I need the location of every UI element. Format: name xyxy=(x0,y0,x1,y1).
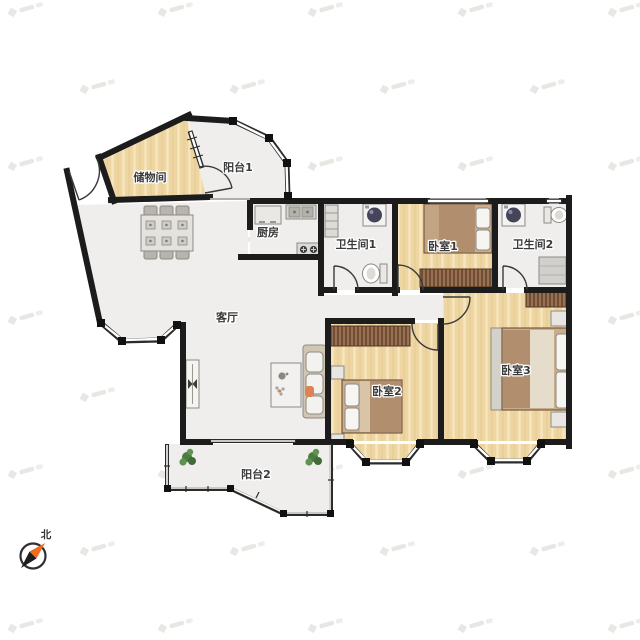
watermark-icon xyxy=(6,615,44,635)
floorplan-canvas: 储物间 阳台1 厨房 卫生间1 卧室1 卫生间2 客厅 卧室2 卧室3 阳台2 … xyxy=(0,0,640,640)
bath2-toilet xyxy=(544,207,567,223)
watermark-icon xyxy=(156,0,194,19)
watermark-icon xyxy=(378,76,416,96)
bath1-washing-machine xyxy=(363,204,386,226)
sofa xyxy=(303,345,326,418)
watermark-icon xyxy=(606,153,640,173)
watermark-icon xyxy=(228,538,266,558)
label-bath1: 卫生间1 xyxy=(336,237,377,251)
watermark-icon xyxy=(6,0,44,19)
label-balcony1: 阳台1 xyxy=(223,160,253,174)
watermark-icon xyxy=(378,538,416,558)
bedroom2-wardrobe xyxy=(331,326,410,346)
dining-table xyxy=(141,206,193,259)
label-kitchen: 厨房 xyxy=(257,225,279,239)
label-balcony2: 阳台2 xyxy=(241,467,271,481)
bath1-vanity xyxy=(325,205,338,237)
label-bedroom1: 卧室1 xyxy=(428,239,458,253)
watermark-icon xyxy=(456,615,494,635)
watermark-icon xyxy=(78,384,116,404)
watermark-icon xyxy=(306,0,344,19)
bedroom1-wardrobe xyxy=(420,269,493,287)
bath1-toilet xyxy=(363,264,388,283)
watermark-icon xyxy=(6,153,44,173)
label-storage: 储物间 xyxy=(134,170,167,184)
tv-cabinet xyxy=(186,360,199,408)
watermark-icon xyxy=(156,615,194,635)
watermark-icon xyxy=(606,0,640,19)
coffee-table xyxy=(271,363,301,407)
watermark-icon xyxy=(6,307,44,327)
watermark-icon xyxy=(606,461,640,481)
watermark-icon xyxy=(228,76,266,96)
label-bedroom2: 卧室2 xyxy=(372,384,402,398)
watermark-icon xyxy=(456,0,494,19)
watermark-icon xyxy=(306,615,344,635)
watermark-icon xyxy=(6,461,44,481)
label-bedroom3: 卧室3 xyxy=(501,363,531,377)
watermark-icon xyxy=(528,538,566,558)
bath2-shower xyxy=(539,257,566,284)
compass: 北 xyxy=(21,528,52,569)
watermark-icon xyxy=(456,153,494,173)
bath2-washing-machine xyxy=(502,204,525,226)
watermark-icon xyxy=(78,76,116,96)
watermark-icon xyxy=(306,153,344,173)
watermark-icon xyxy=(528,76,566,96)
bedroom3-wardrobe xyxy=(526,292,567,307)
compass-north-label: 北 xyxy=(41,528,52,541)
label-living: 客厅 xyxy=(215,310,238,324)
watermark-icon xyxy=(78,538,116,558)
floorplan-svg: 储物间 阳台1 厨房 卫生间1 卧室1 卫生间2 客厅 卧室2 卧室3 阳台2 … xyxy=(0,0,640,640)
watermark-icon xyxy=(606,615,640,635)
watermark-icon xyxy=(606,307,640,327)
label-bath2: 卫生间2 xyxy=(513,237,554,251)
